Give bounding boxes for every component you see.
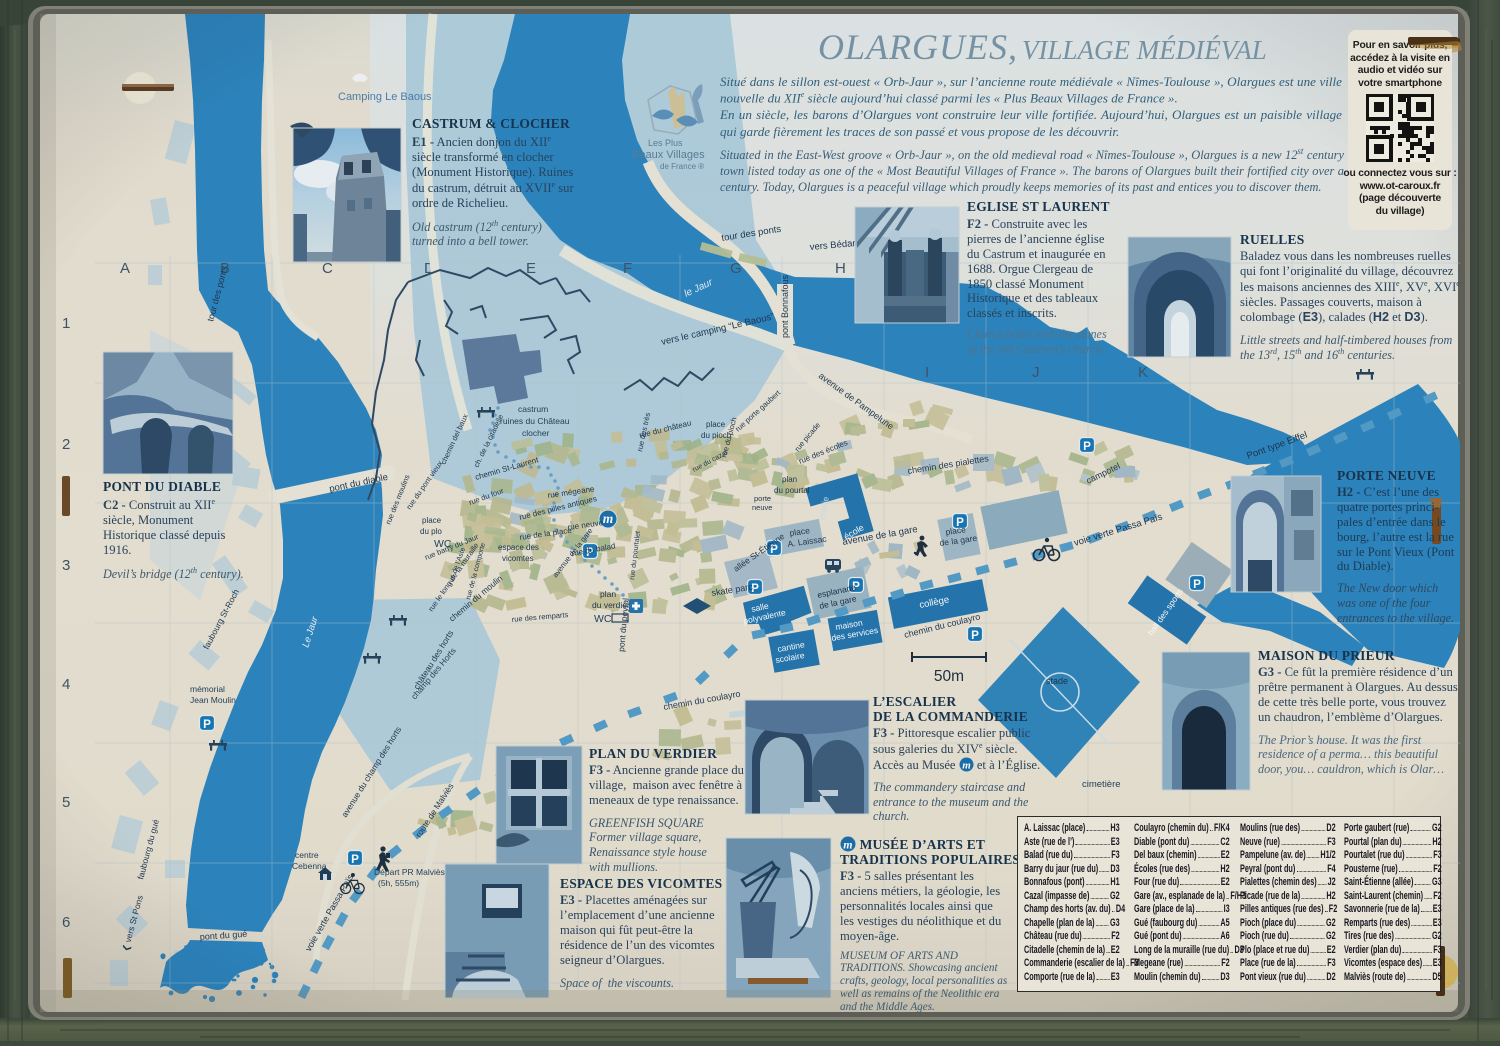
- svg-text:m: m: [843, 838, 853, 852]
- svg-text:m: m: [962, 760, 971, 772]
